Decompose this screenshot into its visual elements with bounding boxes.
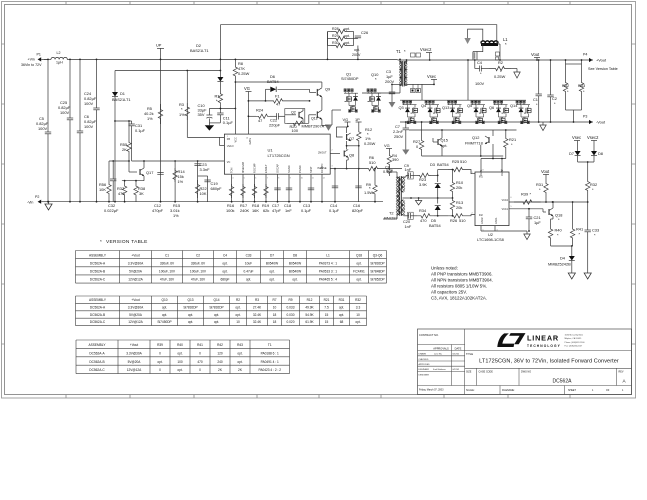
svg-text:32.4K: 32.4K [253, 320, 262, 324]
svg-text:P4: P4 [583, 53, 587, 57]
svg-text:June Wu: June Wu [434, 354, 442, 356]
svg-text:B0540W: B0540W [266, 261, 278, 265]
svg-text:100uF, 10V: 100uF, 10V [190, 270, 207, 274]
svg-text:Si7852DP: Si7852DP [370, 278, 384, 282]
svg-text:B0540W: B0540W [289, 261, 301, 265]
svg-text:10: 10 [273, 305, 277, 309]
svg-text:Q3: Q3 [399, 105, 404, 110]
svg-text:Si7892DP: Si7892DP [209, 305, 223, 309]
svg-text:opt.: opt. [214, 320, 219, 324]
svg-text:R3: R3 [255, 298, 259, 302]
svg-text:47pF: 47pF [272, 208, 281, 213]
svg-text:All capacitors 25V.: All capacitors 25V. [431, 290, 467, 295]
svg-text:0.020: 0.020 [287, 320, 295, 324]
svg-text:47uF, 16V: 47uF, 16V [160, 278, 175, 282]
svg-text:R34: R34 [419, 208, 427, 213]
svg-text:ASSEMBLY: ASSEMBLY [89, 253, 107, 257]
svg-text:5: 5 [244, 178, 245, 180]
svg-text:1nF: 1nF [405, 224, 412, 229]
svg-text:120: 120 [217, 351, 223, 355]
svg-text:32.4K: 32.4K [253, 313, 262, 317]
svg-text:BAT54: BAT54 [437, 162, 449, 167]
svg-text:F1: F1 [275, 94, 280, 99]
svg-text:opt.: opt. [177, 368, 182, 372]
svg-text:3.3nF: 3.3nF [200, 167, 211, 172]
svg-text:FCX491: FCX491 [353, 270, 365, 274]
svg-text:240K: 240K [240, 208, 249, 213]
svg-text:2K: 2K [122, 147, 127, 152]
svg-text:61.9K: 61.9K [305, 320, 314, 324]
svg-text:DRAWN: DRAWN [419, 353, 427, 356]
svg-text:UVLO: UVLO [227, 145, 234, 148]
svg-text:R7: R7 [272, 298, 276, 302]
svg-text:Q15: Q15 [441, 138, 448, 143]
svg-text:Vout: Vout [541, 169, 550, 174]
svg-text:R24: R24 [256, 108, 264, 113]
svg-text:0.033: 0.033 [287, 305, 295, 309]
svg-text:100V: 100V [84, 124, 93, 129]
svg-text:Q11: Q11 [311, 117, 318, 121]
svg-text:D1: D1 [120, 91, 125, 96]
svg-text:12: 12 [323, 178, 325, 180]
svg-text:VG: VG [244, 86, 250, 91]
svg-text:U1: U1 [268, 147, 274, 152]
svg-text:PA0188 6 : 1: PA0188 6 : 1 [261, 351, 279, 355]
svg-text:3.3V@30A: 3.3V@30A [126, 351, 142, 355]
svg-text:Si7450DP: Si7450DP [157, 320, 171, 324]
svg-text:SGND: SGND [287, 165, 291, 173]
svg-text:Vsec: Vsec [427, 74, 436, 79]
svg-text:100V: 100V [60, 110, 69, 115]
svg-text:All resistors 0805 1/10W 5%.: All resistors 0805 1/10W 5%. [431, 284, 487, 289]
svg-text:R43: R43 [578, 83, 585, 88]
svg-text:Fax: (408)434-0507: Fax: (408)434-0507 [565, 346, 583, 348]
svg-text:240: 240 [217, 360, 223, 364]
svg-text:0.030: 0.030 [287, 313, 295, 317]
svg-text:PA0491 4 : 1: PA0491 4 : 1 [261, 360, 279, 364]
svg-text:FILENAME:: FILENAME: [502, 389, 515, 392]
svg-text:1: 1 [227, 136, 228, 138]
svg-text:20k: 20k [456, 205, 462, 210]
svg-text:Q5: Q5 [467, 103, 472, 108]
svg-text:C33: C33 [246, 253, 252, 257]
svg-text:2NOUT: 2NOUT [318, 152, 327, 155]
svg-text:R42: R42 [217, 343, 223, 347]
svg-text:10: 10 [236, 320, 240, 324]
svg-text:Si7848DP: Si7848DP [370, 270, 384, 274]
svg-text:R41: R41 [197, 343, 203, 347]
svg-text:100V: 100V [38, 126, 47, 131]
svg-text:5: 5 [511, 206, 512, 208]
svg-text:2: 2 [472, 213, 473, 215]
svg-text:10: 10 [301, 178, 303, 180]
svg-text:1%: 1% [147, 116, 153, 121]
svg-text:FMMT718: FMMT718 [465, 141, 483, 146]
svg-text:OSCAP: OSCAP [276, 164, 280, 173]
svg-text:C1: C1 [165, 253, 169, 257]
svg-text:opt.: opt. [269, 278, 274, 282]
svg-text:680pF: 680pF [211, 186, 223, 191]
svg-text:Milpitas, CA 95035: Milpitas, CA 95035 [565, 337, 583, 340]
svg-text:1.5W: 1.5W [364, 190, 373, 195]
svg-text:UP: UP [156, 43, 162, 48]
svg-text:opt.: opt. [235, 313, 240, 317]
svg-text:3.3: 3.3 [356, 305, 361, 309]
svg-text:Q2: Q2 [291, 111, 296, 115]
svg-text:Phone: (408)432-1900: Phone: (408)432-1900 [565, 342, 586, 344]
svg-text:47: 47 [258, 118, 262, 123]
svg-text:D7: D7 [270, 253, 274, 257]
svg-text:510: 510 [459, 218, 466, 223]
svg-text:Q18: Q18 [356, 253, 362, 257]
svg-text:R25: R25 [452, 159, 459, 164]
svg-text:R9: R9 [288, 298, 292, 302]
svg-text:680pF: 680pF [220, 278, 229, 282]
svg-text:Q13: Q13 [187, 298, 193, 302]
svg-text:ISENSE: ISENSE [317, 167, 327, 170]
svg-text:330uF, 6V: 330uF, 6V [160, 261, 175, 265]
svg-text:C4: C4 [477, 60, 483, 65]
svg-text:SIZE: SIZE [466, 370, 472, 373]
svg-text:12V@12A: 12V@12A [128, 278, 143, 282]
svg-text:PA0373 4 : 1: PA0373 4 : 1 [319, 261, 337, 265]
svg-text:2: 2 [332, 150, 333, 152]
svg-text:1µF: 1µF [534, 220, 541, 225]
svg-text:510: 510 [460, 159, 467, 164]
svg-text:DC562A-B: DC562A-B [89, 360, 104, 364]
svg-text:DC562A-A: DC562A-A [90, 305, 106, 309]
svg-text:opt.: opt. [162, 313, 167, 317]
svg-text:opt.: opt. [269, 270, 274, 274]
svg-text:470: 470 [197, 360, 203, 364]
svg-text:VCC1: VCC1 [502, 208, 509, 211]
svg-text:Vsec2: Vsec2 [420, 47, 432, 52]
svg-text:4: 4 [232, 178, 233, 180]
svg-text:DESIGNER: DESIGNER [419, 374, 430, 376]
svg-text:6/12/02: 6/12/02 [453, 354, 461, 356]
svg-text:PA0533 3 : 1: PA0533 3 : 1 [319, 270, 337, 274]
svg-text:1630 McCarthy Blvd.: 1630 McCarthy Blvd. [565, 334, 584, 337]
svg-text:R32: R32 [355, 298, 361, 302]
svg-text:3.9K: 3.9K [419, 182, 427, 187]
svg-text:opt.: opt. [339, 313, 344, 317]
svg-text:VG: VG [343, 117, 349, 122]
svg-text:Q4: Q4 [421, 103, 427, 108]
svg-text:PGND: PGND [298, 165, 302, 173]
svg-text:Q14: Q14 [510, 103, 518, 108]
svg-text:DC562A-C: DC562A-C [89, 368, 105, 372]
svg-text:7: 7 [267, 178, 268, 180]
svg-text:opt.: opt. [222, 261, 227, 265]
svg-text:5V@20A: 5V@20A [128, 360, 142, 364]
svg-text:PA0297: PA0297 [384, 216, 398, 221]
svg-text:ENGINEER: ENGINEER [419, 369, 430, 371]
svg-text:Q7: Q7 [349, 136, 354, 141]
svg-text:R30: R30 [332, 41, 339, 45]
svg-text:12V@12A: 12V@12A [127, 368, 142, 372]
svg-text:SFST: SFST [309, 166, 313, 173]
svg-text:6: 6 [511, 197, 512, 199]
svg-text:18: 18 [273, 313, 277, 317]
svg-text:1: 1 [472, 172, 473, 174]
svg-text:All PNP transistors MMBT3906.: All PNP transistors MMBT3906. [431, 271, 493, 276]
svg-text:0: 0 [159, 351, 161, 355]
svg-text:6/12/02: 6/12/02 [453, 369, 461, 371]
svg-text:opt.: opt. [339, 305, 344, 309]
svg-text:D8: D8 [293, 253, 297, 257]
svg-text:R43: R43 [237, 343, 243, 347]
svg-text:R39: R39 [157, 343, 163, 347]
svg-text:opt.: opt. [235, 305, 240, 309]
svg-text:opt.: opt. [344, 41, 350, 45]
svg-text:APPROVALS: APPROVALS [433, 347, 449, 351]
svg-text:3.3V@30A: 3.3V@30A [128, 305, 144, 309]
svg-text:LT1725CGN: LT1725CGN [268, 153, 290, 158]
svg-text:opt.: opt. [356, 278, 361, 282]
svg-text:C2: C2 [196, 253, 200, 257]
svg-text:R21: R21 [324, 298, 330, 302]
svg-text:10uF: 10uF [245, 261, 252, 265]
svg-text:15: 15 [325, 320, 329, 324]
svg-text:820pF: 820pF [352, 208, 364, 213]
svg-text:ASSEMBLY: ASSEMBLY [89, 343, 107, 347]
svg-text:T1: T1 [396, 49, 402, 54]
svg-text:470pF: 470pF [152, 208, 164, 213]
svg-text:1%: 1% [179, 112, 185, 117]
svg-text:R29: R29 [332, 34, 339, 38]
svg-text:BAS21LT1: BAS21LT1 [112, 97, 131, 102]
svg-text:opt.: opt. [355, 320, 360, 324]
svg-text:0.1µF: 0.1µF [301, 208, 312, 213]
svg-text:REV: REV [619, 370, 624, 373]
svg-text:10: 10 [356, 313, 360, 317]
svg-text:220pF: 220pF [269, 123, 281, 128]
svg-text:opt.: opt. [246, 278, 251, 282]
svg-text:+Vout: +Vout [596, 58, 607, 63]
svg-text:CONTRACT NO.: CONTRACT NO. [419, 333, 439, 337]
svg-text:R2: R2 [498, 60, 503, 65]
svg-text:200V: 200V [385, 79, 394, 84]
svg-text:MMBZ5242B: MMBZ5242B [548, 262, 571, 267]
svg-text:FB: FB [227, 138, 231, 141]
svg-text:GND1: GND1 [495, 217, 498, 224]
svg-text:R12: R12 [307, 298, 313, 302]
svg-text:opt.: opt. [177, 351, 182, 355]
svg-text:VC: VC [227, 161, 231, 164]
svg-text:MSENAB: MSENAB [241, 162, 245, 173]
svg-text:1nF: 1nF [285, 208, 292, 213]
svg-text:200V: 200V [352, 53, 361, 57]
svg-text:D3: D3 [430, 162, 435, 167]
svg-text:1P: 1P [355, 117, 360, 122]
svg-text:47uF, 16V: 47uF, 16V [191, 278, 206, 282]
svg-text:D8: D8 [598, 151, 603, 156]
svg-text:DC562A-B: DC562A-B [90, 313, 105, 317]
svg-text:SHEET: SHEET [568, 389, 577, 392]
svg-text:DC562A-A: DC562A-A [89, 351, 105, 355]
svg-text:-Vout: -Vout [596, 120, 606, 125]
svg-text:100uF, 10V: 100uF, 10V [159, 270, 176, 274]
svg-text:APPROVED: APPROVED [419, 363, 431, 366]
svg-text:Vsec2: Vsec2 [587, 135, 599, 140]
svg-text:ROCMP: ROCMP [253, 163, 257, 173]
svg-text:+Vout: +Vout [130, 343, 138, 347]
svg-text:R31: R31 [339, 298, 345, 302]
svg-text:DC562A-B: DC562A-B [90, 270, 105, 274]
svg-text:R2: R2 [236, 298, 240, 302]
svg-text:330uF, 6V: 330uF, 6V [191, 261, 206, 265]
svg-text:7.5: 7.5 [324, 305, 329, 309]
svg-text:opt.: opt. [292, 278, 297, 282]
svg-text:ENDLY: ENDLY [264, 164, 268, 173]
svg-text:62k: 62k [263, 208, 269, 213]
svg-text:54.9K: 54.9K [305, 313, 314, 317]
svg-text:Q13: Q13 [442, 105, 449, 110]
svg-text:9: 9 [290, 178, 291, 180]
svg-text:5V@20A: 5V@20A [129, 313, 143, 317]
svg-text:3: 3 [332, 166, 333, 168]
svg-text:Vout: Vout [531, 52, 540, 57]
svg-text:R26: R26 [450, 218, 457, 223]
svg-text:16: 16 [246, 138, 248, 140]
svg-text:1%: 1% [173, 213, 179, 218]
svg-text:3K: 3K [139, 191, 144, 196]
svg-text:R39: R39 [521, 192, 528, 197]
svg-text:+Vin: +Vin [28, 57, 35, 61]
svg-text:DC562A-C: DC562A-C [90, 320, 106, 324]
svg-text:opt.: opt. [354, 48, 360, 52]
svg-text:+Vout: +Vout [131, 298, 139, 302]
svg-text:P1: P1 [37, 52, 41, 56]
svg-text:VERSION TABLE: VERSION TABLE [106, 239, 148, 245]
svg-text:7: 7 [501, 170, 502, 172]
svg-text:DATE: DATE [455, 347, 462, 351]
svg-text:-Vin: -Vin [27, 201, 33, 205]
svg-text:10K: 10K [200, 191, 207, 196]
svg-text:1nF: 1nF [405, 167, 412, 172]
svg-text:VG: VG [384, 143, 390, 148]
svg-text:DC562A-A: DC562A-A [90, 261, 106, 265]
svg-text:Si7892DP: Si7892DP [370, 261, 384, 265]
svg-text:0.1µF: 0.1µF [223, 120, 234, 125]
svg-text:D4: D4 [560, 256, 566, 261]
svg-text:0.25W: 0.25W [364, 141, 376, 146]
svg-text:BAT54: BAT54 [429, 223, 441, 228]
svg-text:IN2: IN2 [479, 214, 483, 217]
svg-text:CHECKED: CHECKED [419, 359, 429, 361]
svg-text:10K: 10K [99, 187, 106, 192]
svg-text:5V@20A: 5V@20A [129, 270, 143, 274]
svg-text:0.25W: 0.25W [494, 74, 506, 79]
svg-text:100: 100 [292, 128, 299, 133]
svg-text:27.4K: 27.4K [253, 305, 262, 309]
svg-text:T1: T1 [268, 343, 272, 347]
svg-text:opt.: opt. [157, 360, 162, 364]
svg-text:250V: 250V [394, 134, 403, 139]
svg-text:0.1µF: 0.1µF [383, 169, 394, 174]
svg-text:*: * [100, 239, 102, 244]
svg-text:11: 11 [312, 178, 314, 180]
svg-text:1µH: 1µH [56, 61, 63, 65]
svg-text:15: 15 [325, 313, 329, 317]
svg-text:P2: P2 [35, 195, 39, 199]
svg-text:510: 510 [369, 160, 376, 165]
svg-text:SCALE:: SCALE: [466, 389, 475, 392]
svg-text:Si7450DP: Si7450DP [341, 76, 359, 81]
svg-text:16K: 16K [252, 208, 259, 213]
svg-text:PA0423 4 : 2 : 2: PA0423 4 : 2 : 2 [258, 368, 281, 372]
svg-text:47: 47 [276, 102, 280, 107]
svg-text:Q6: Q6 [489, 105, 494, 110]
svg-text:0.47uF: 0.47uF [244, 270, 254, 274]
svg-text:BAS21LT1: BAS21LT1 [190, 48, 209, 53]
svg-text:Kurk Mathews: Kurk Mathews [433, 368, 446, 371]
svg-text:Si7892DP: Si7892DP [183, 305, 197, 309]
svg-text:8: 8 [278, 178, 279, 180]
svg-text:Q3-Q6: Q3-Q6 [373, 253, 383, 257]
svg-text:LTC1698-1CS8: LTC1698-1CS8 [477, 237, 504, 242]
svg-text:100V: 100V [84, 101, 93, 106]
svg-text:opt.: opt. [344, 34, 350, 38]
svg-text:L1: L1 [326, 253, 330, 257]
svg-text:TON: TON [230, 167, 234, 173]
svg-text:0: 0 [199, 368, 201, 372]
svg-text:0.1µF: 0.1µF [135, 128, 146, 133]
svg-text:1%: 1% [178, 179, 184, 184]
svg-text:R40: R40 [177, 343, 183, 347]
svg-text:100k: 100k [226, 208, 234, 213]
svg-text:MMBT2907A: MMBT2907A [302, 124, 325, 129]
svg-text:All NPN transistors MMBT3904.: All NPN transistors MMBT3904. [431, 278, 493, 283]
svg-text:VCC2: VCC2 [502, 199, 509, 202]
svg-text:opt.: opt. [237, 351, 242, 355]
svg-text:BAT54: BAT54 [267, 79, 279, 84]
svg-text:R28: R28 [332, 27, 339, 31]
svg-text:Vsec: Vsec [572, 135, 581, 140]
svg-text:opt.: opt. [222, 270, 227, 274]
svg-text:12V@12A: 12V@12A [128, 320, 143, 324]
svg-text:0.1µF: 0.1µF [329, 208, 340, 213]
svg-text:100: 100 [177, 360, 183, 364]
svg-text:+Vout: +Vout [131, 253, 139, 257]
svg-text:D7: D7 [569, 151, 574, 156]
svg-text:opt.: opt. [188, 313, 193, 317]
svg-text:68: 68 [340, 320, 344, 324]
svg-text:opt.: opt. [188, 320, 193, 324]
svg-text:Q8: Q8 [349, 153, 354, 158]
svg-text:0.022µF: 0.022µF [104, 208, 119, 213]
svg-text:C26: C26 [361, 30, 368, 35]
svg-text:LINEAR: LINEAR [527, 334, 559, 343]
svg-text:C3, AVX, 18122A102KAT2A.: C3, AVX, 18122A102KAT2A. [431, 296, 487, 301]
svg-text:VCC: VCC [235, 137, 238, 142]
svg-text:opt.: opt. [344, 27, 350, 31]
svg-text:Friday, March 07, 2003: Friday, March 07, 2003 [419, 389, 444, 392]
svg-text:B0540W: B0540W [289, 270, 301, 274]
svg-text:100V: 100V [475, 81, 484, 86]
svg-text:PA0465 5 : 4: PA0465 5 : 4 [319, 278, 337, 282]
svg-text:GND2: GND2 [481, 217, 484, 224]
svg-text:L2: L2 [57, 51, 61, 55]
svg-text:20k: 20k [456, 185, 462, 190]
svg-text:opt.: opt. [162, 305, 167, 309]
svg-text:P3: P3 [583, 115, 587, 119]
svg-text:35V: 35V [198, 112, 205, 117]
svg-text:Unless noted:: Unless noted: [431, 265, 458, 270]
svg-text:470: 470 [118, 191, 125, 196]
svg-text:Q14: Q14 [213, 298, 219, 302]
svg-text:CAGE CODE: CAGE CODE [479, 370, 494, 373]
